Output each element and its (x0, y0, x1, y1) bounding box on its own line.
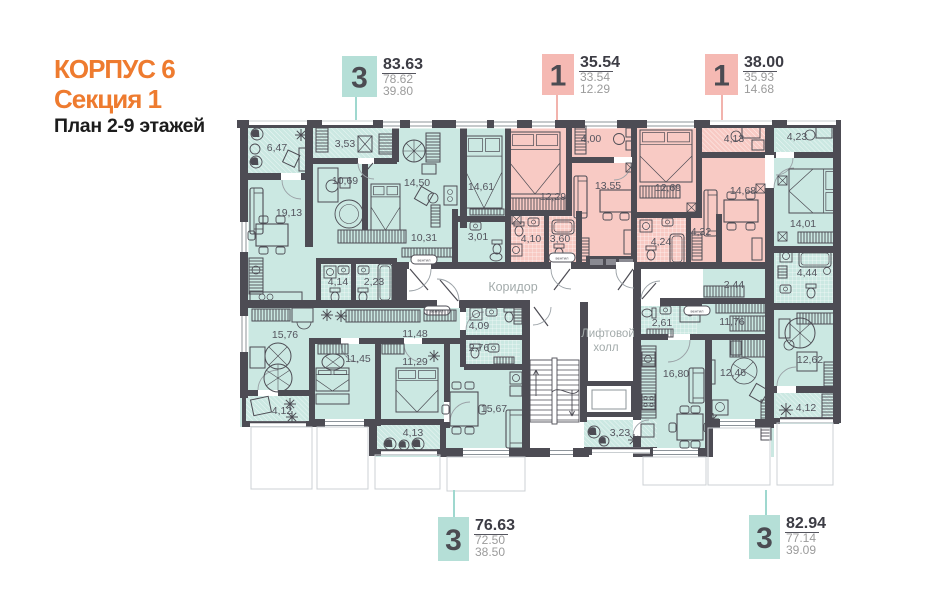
svg-text:14,50: 14,50 (404, 177, 430, 189)
svg-text:4,23: 4,23 (787, 131, 808, 143)
svg-text:4,24: 4,24 (651, 236, 672, 248)
svg-text:4,14: 4,14 (328, 276, 349, 288)
svg-text:3: 3 (445, 524, 462, 557)
svg-text:1: 1 (550, 60, 567, 93)
svg-text:2,76: 2,76 (469, 342, 490, 354)
svg-text:11,45: 11,45 (345, 353, 371, 365)
svg-text:3: 3 (756, 522, 773, 555)
svg-text:15,76: 15,76 (272, 329, 298, 341)
svg-text:12.29: 12.29 (580, 82, 610, 96)
svg-text:10,69: 10,69 (332, 175, 358, 187)
svg-text:4,44: 4,44 (797, 267, 818, 279)
svg-text:6,47: 6,47 (267, 142, 288, 154)
svg-text:39.80: 39.80 (383, 84, 413, 98)
svg-text:2,44: 2,44 (724, 279, 745, 291)
svg-text:4,09: 4,09 (469, 320, 490, 332)
svg-text:15,67: 15,67 (481, 403, 507, 415)
svg-text:3,23: 3,23 (610, 427, 631, 439)
svg-text:11,48: 11,48 (402, 328, 428, 340)
svg-text:2,23: 2,23 (364, 276, 385, 288)
svg-text:13,55: 13,55 (595, 180, 621, 192)
svg-text:3,60: 3,60 (550, 233, 571, 245)
svg-text:14.68: 14.68 (744, 82, 774, 96)
svg-text:2,61: 2,61 (652, 317, 673, 329)
svg-text:14,68: 14,68 (730, 185, 756, 197)
svg-text:КОРПУС 6: КОРПУС 6 (54, 54, 175, 84)
svg-text:19,13: 19,13 (276, 207, 302, 219)
svg-text:39.09: 39.09 (786, 543, 816, 557)
svg-text:холл: холл (593, 342, 618, 354)
svg-text:Лифтовой: Лифтовой (581, 328, 635, 340)
svg-text:16,80: 16,80 (663, 368, 689, 380)
svg-text:4,13: 4,13 (724, 133, 745, 145)
svg-text:вентил: вентил (691, 309, 705, 314)
svg-text:11,76: 11,76 (719, 316, 745, 328)
svg-text:4,00: 4,00 (581, 133, 602, 145)
svg-text:12,29: 12,29 (540, 191, 566, 203)
svg-text:11,29: 11,29 (402, 356, 428, 368)
svg-text:38.00: 38.00 (744, 54, 784, 71)
svg-text:14,01: 14,01 (790, 218, 816, 230)
svg-text:4,12: 4,12 (272, 405, 293, 417)
svg-text:Коридор: Коридор (488, 280, 537, 294)
svg-text:4,32: 4,32 (691, 226, 712, 238)
svg-text:12,62: 12,62 (797, 354, 823, 366)
svg-text:1: 1 (713, 60, 730, 93)
svg-text:83.63: 83.63 (383, 56, 423, 73)
svg-text:10,31: 10,31 (411, 232, 437, 244)
svg-text:38.50: 38.50 (475, 545, 505, 559)
svg-text:вентил: вентил (556, 256, 570, 261)
svg-text:3: 3 (351, 62, 368, 95)
svg-text:76.63: 76.63 (475, 517, 515, 534)
svg-text:4,13: 4,13 (403, 427, 424, 439)
svg-text:4,10: 4,10 (521, 233, 542, 245)
svg-text:35.54: 35.54 (580, 54, 620, 71)
svg-text:82.94: 82.94 (786, 515, 826, 532)
svg-text:12,46: 12,46 (720, 367, 746, 379)
svg-text:4,12: 4,12 (796, 402, 817, 414)
svg-text:3,01: 3,01 (468, 231, 489, 243)
svg-text:вентил: вентил (418, 258, 432, 263)
svg-text:Секция 1: Секция 1 (54, 84, 162, 114)
svg-text:14,61: 14,61 (468, 181, 494, 193)
svg-text:3,53: 3,53 (335, 138, 356, 150)
svg-text:План 2-9 этажей: План 2-9 этажей (54, 115, 205, 137)
svg-text:12,69: 12,69 (655, 182, 681, 194)
